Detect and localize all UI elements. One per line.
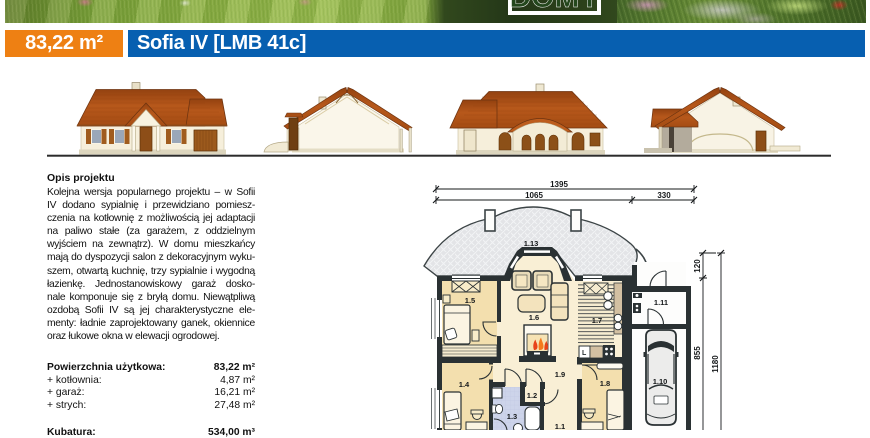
svg-text:1395: 1395 <box>550 180 568 189</box>
svg-text:1.1: 1.1 <box>555 422 565 430</box>
svg-text:120: 120 <box>693 259 702 273</box>
svg-text:1.10: 1.10 <box>653 377 668 386</box>
svg-text:1.6: 1.6 <box>529 313 539 322</box>
svg-text:1.11: 1.11 <box>654 298 668 307</box>
svg-text:1.7: 1.7 <box>592 316 602 325</box>
svg-text:1.5: 1.5 <box>465 296 475 305</box>
svg-text:1065: 1065 <box>525 191 543 200</box>
svg-text:1180: 1180 <box>711 355 720 373</box>
svg-text:1.9: 1.9 <box>555 370 565 379</box>
svg-text:L: L <box>582 350 587 357</box>
svg-text:1.2: 1.2 <box>527 391 537 400</box>
svg-text:1.3: 1.3 <box>507 412 517 421</box>
svg-text:1.8: 1.8 <box>600 379 610 388</box>
svg-text:1.4: 1.4 <box>459 380 470 389</box>
svg-text:855: 855 <box>693 346 702 360</box>
svg-text:1.13: 1.13 <box>524 239 539 248</box>
svg-text:330: 330 <box>657 191 671 200</box>
